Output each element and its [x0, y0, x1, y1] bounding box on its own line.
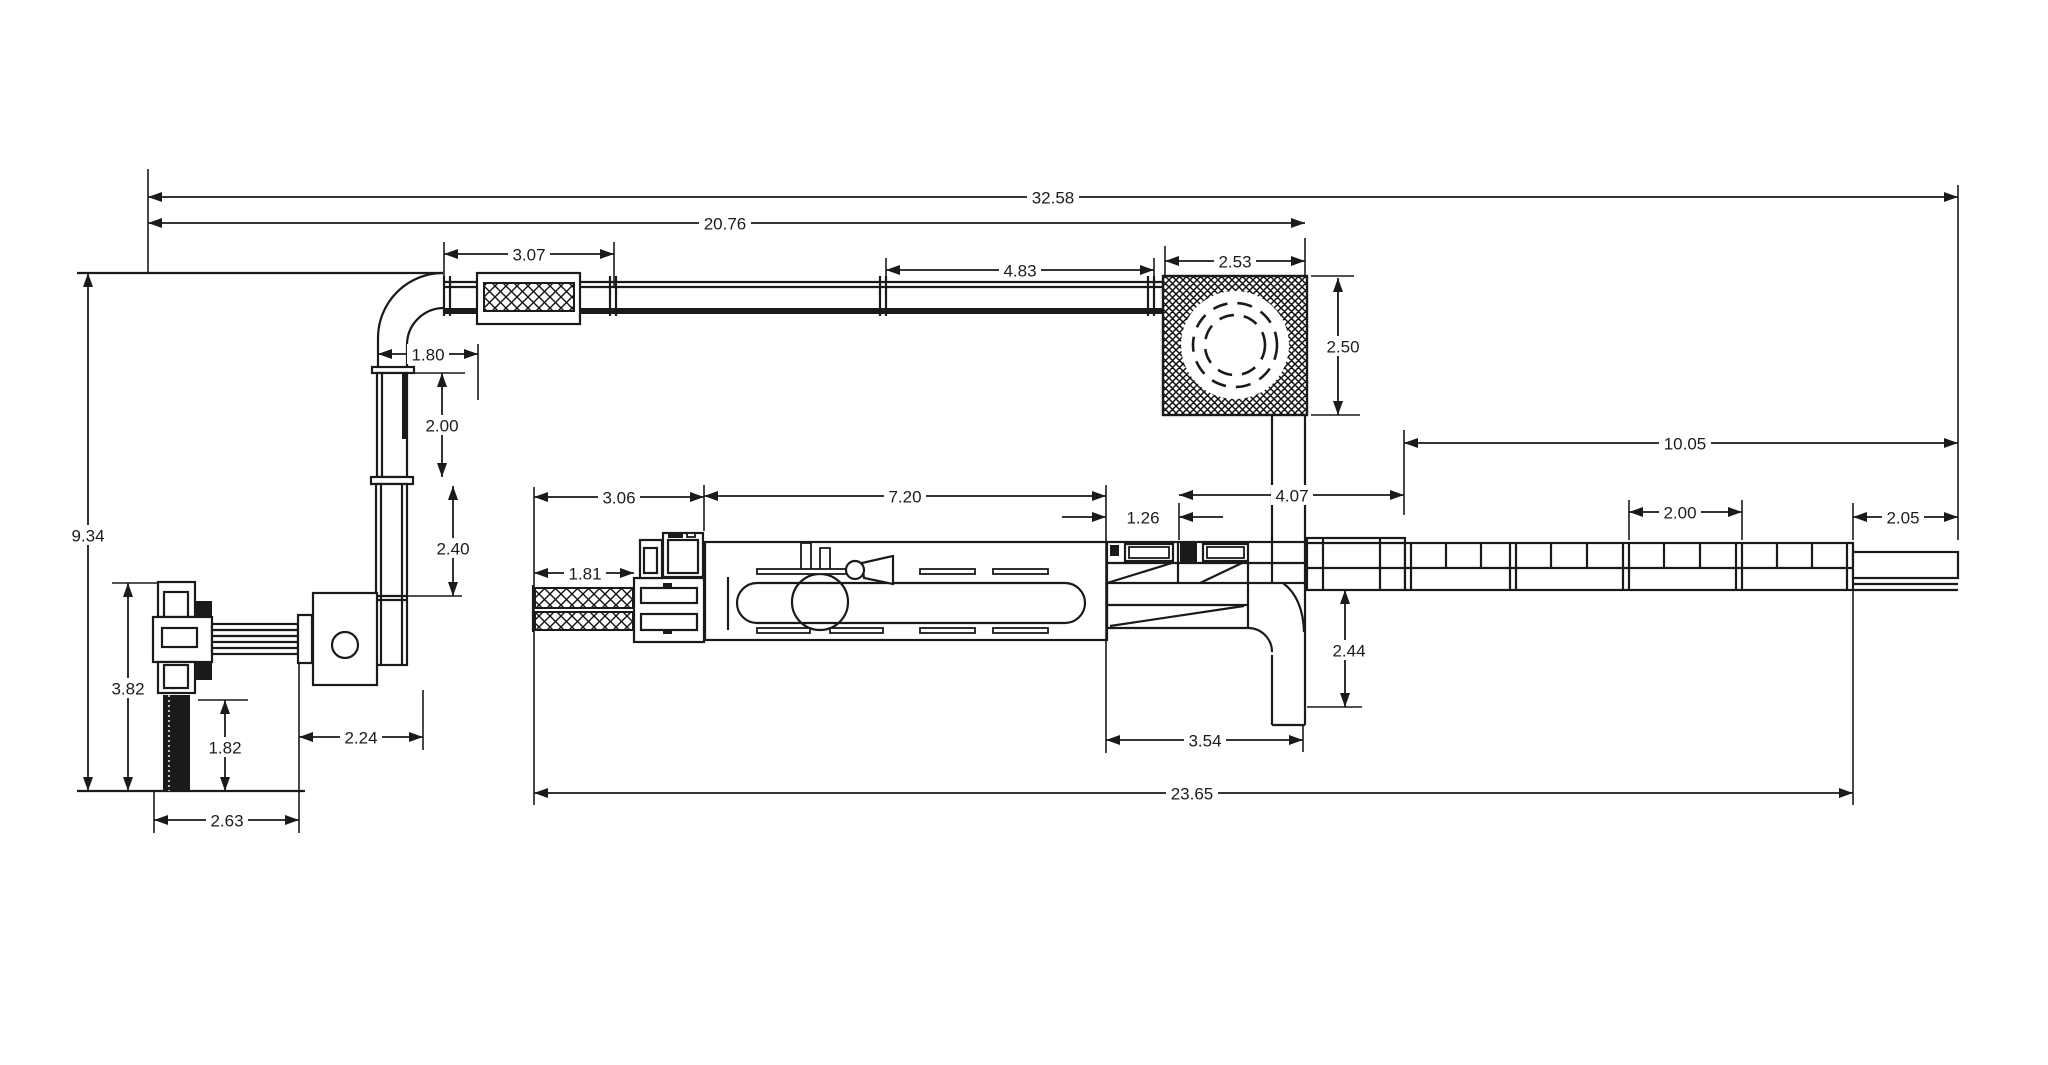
svg-text:20.76: 20.76: [704, 215, 747, 234]
dim-drain-run: 3.54: [1184, 730, 1226, 751]
svg-text:2.00: 2.00: [425, 417, 458, 436]
palletizer-assembly: [153, 582, 377, 791]
dim-outfeed-bay: 2.00: [1659, 502, 1701, 523]
svg-text:2.05: 2.05: [1886, 509, 1919, 528]
svg-text:4.83: 4.83: [1003, 262, 1036, 281]
dim-rotary-height: 2.50: [1321, 336, 1365, 357]
svg-text:1.26: 1.26: [1126, 509, 1159, 528]
dim-post-height: 1.82: [204, 737, 246, 758]
top-duct-run: [378, 273, 1163, 367]
svg-text:4.07: 4.07: [1275, 487, 1308, 506]
support-post: [163, 695, 190, 791]
drive-unit: [313, 593, 377, 685]
outfeed-conveyor: [1307, 538, 1958, 590]
dim-machine-length: 7.20: [884, 486, 926, 507]
cad-floor-plan: 32.58 20.76 3.07 4.83 2.53 2.50 1.80 2.0…: [0, 0, 2048, 1065]
machine-body: [705, 542, 1107, 640]
dim-outfeed-end: 2.05: [1882, 507, 1924, 528]
svg-text:32.58: 32.58: [1032, 189, 1075, 208]
svg-text:2.63: 2.63: [210, 812, 243, 831]
dim-riser-lower: 2.40: [432, 538, 474, 559]
dim-left-height: 9.34: [67, 525, 109, 546]
conveyor-connector: [1307, 538, 1405, 590]
svg-text:3.07: 3.07: [512, 246, 545, 265]
infeed-conveyor: [533, 585, 633, 632]
floor-plan-svg: 32.58 20.76 3.07 4.83 2.53 2.50 1.80 2.0…: [0, 0, 2048, 1065]
dimension-labels: 32.58 20.76 3.07 4.83 2.53 2.50 1.80 2.0…: [67, 187, 1924, 831]
turntable: [1181, 291, 1289, 399]
svg-text:2.50: 2.50: [1326, 338, 1359, 357]
svg-text:10.05: 10.05: [1664, 435, 1707, 454]
hopper: [846, 556, 893, 584]
dim-line-length: 23.65: [1166, 783, 1218, 804]
dim-palletizer-offset: 2.24: [340, 727, 382, 748]
dim-elbow-offset: 1.80: [407, 344, 449, 365]
dim-outfeed-length: 10.05: [1659, 433, 1711, 454]
dim-top-unit: 3.07: [508, 244, 550, 265]
svg-text:3.54: 3.54: [1188, 732, 1221, 751]
capper-unit: [634, 533, 704, 642]
dim-top-run: 20.76: [699, 213, 751, 234]
dim-top-span: 4.83: [999, 260, 1041, 281]
svg-text:1.81: 1.81: [568, 565, 601, 584]
dim-riser-upper: 2.00: [421, 415, 463, 436]
conveyor-end-section: [1853, 552, 1958, 590]
dim-infeed-length: 3.06: [598, 487, 640, 508]
rotary-accumulator: [1163, 276, 1307, 415]
dim-infeed-width: 1.81: [564, 563, 606, 584]
svg-text:3.06: 3.06: [602, 489, 635, 508]
svg-text:1.82: 1.82: [208, 739, 241, 758]
dim-palletizer-width: 2.63: [206, 810, 248, 831]
dim-transfer-gap: 1.26: [1122, 507, 1164, 528]
svg-text:9.34: 9.34: [71, 527, 104, 546]
transfer-belt: [212, 624, 298, 654]
filler-machine: [533, 533, 1307, 642]
svg-text:1.80: 1.80: [411, 346, 444, 365]
dim-discharge-run: 4.07: [1271, 485, 1313, 506]
hatched-unit: [477, 273, 580, 324]
svg-text:23.65: 23.65: [1171, 785, 1214, 804]
dim-drop-height: 2.44: [1327, 640, 1371, 661]
discharge-section: [1107, 542, 1307, 628]
dim-rotary-width: 2.53: [1214, 251, 1256, 272]
svg-text:2.44: 2.44: [1332, 642, 1365, 661]
svg-text:2.00: 2.00: [1663, 504, 1696, 523]
belt-connector: [298, 615, 312, 663]
svg-text:2.24: 2.24: [344, 729, 377, 748]
svg-text:3.82: 3.82: [111, 680, 144, 699]
svg-text:2.40: 2.40: [436, 540, 469, 559]
svg-text:2.53: 2.53: [1218, 253, 1251, 272]
dim-palletizer-height: 3.82: [107, 678, 149, 699]
svg-text:7.20: 7.20: [888, 488, 921, 507]
dim-overall-length: 32.58: [1027, 187, 1079, 208]
